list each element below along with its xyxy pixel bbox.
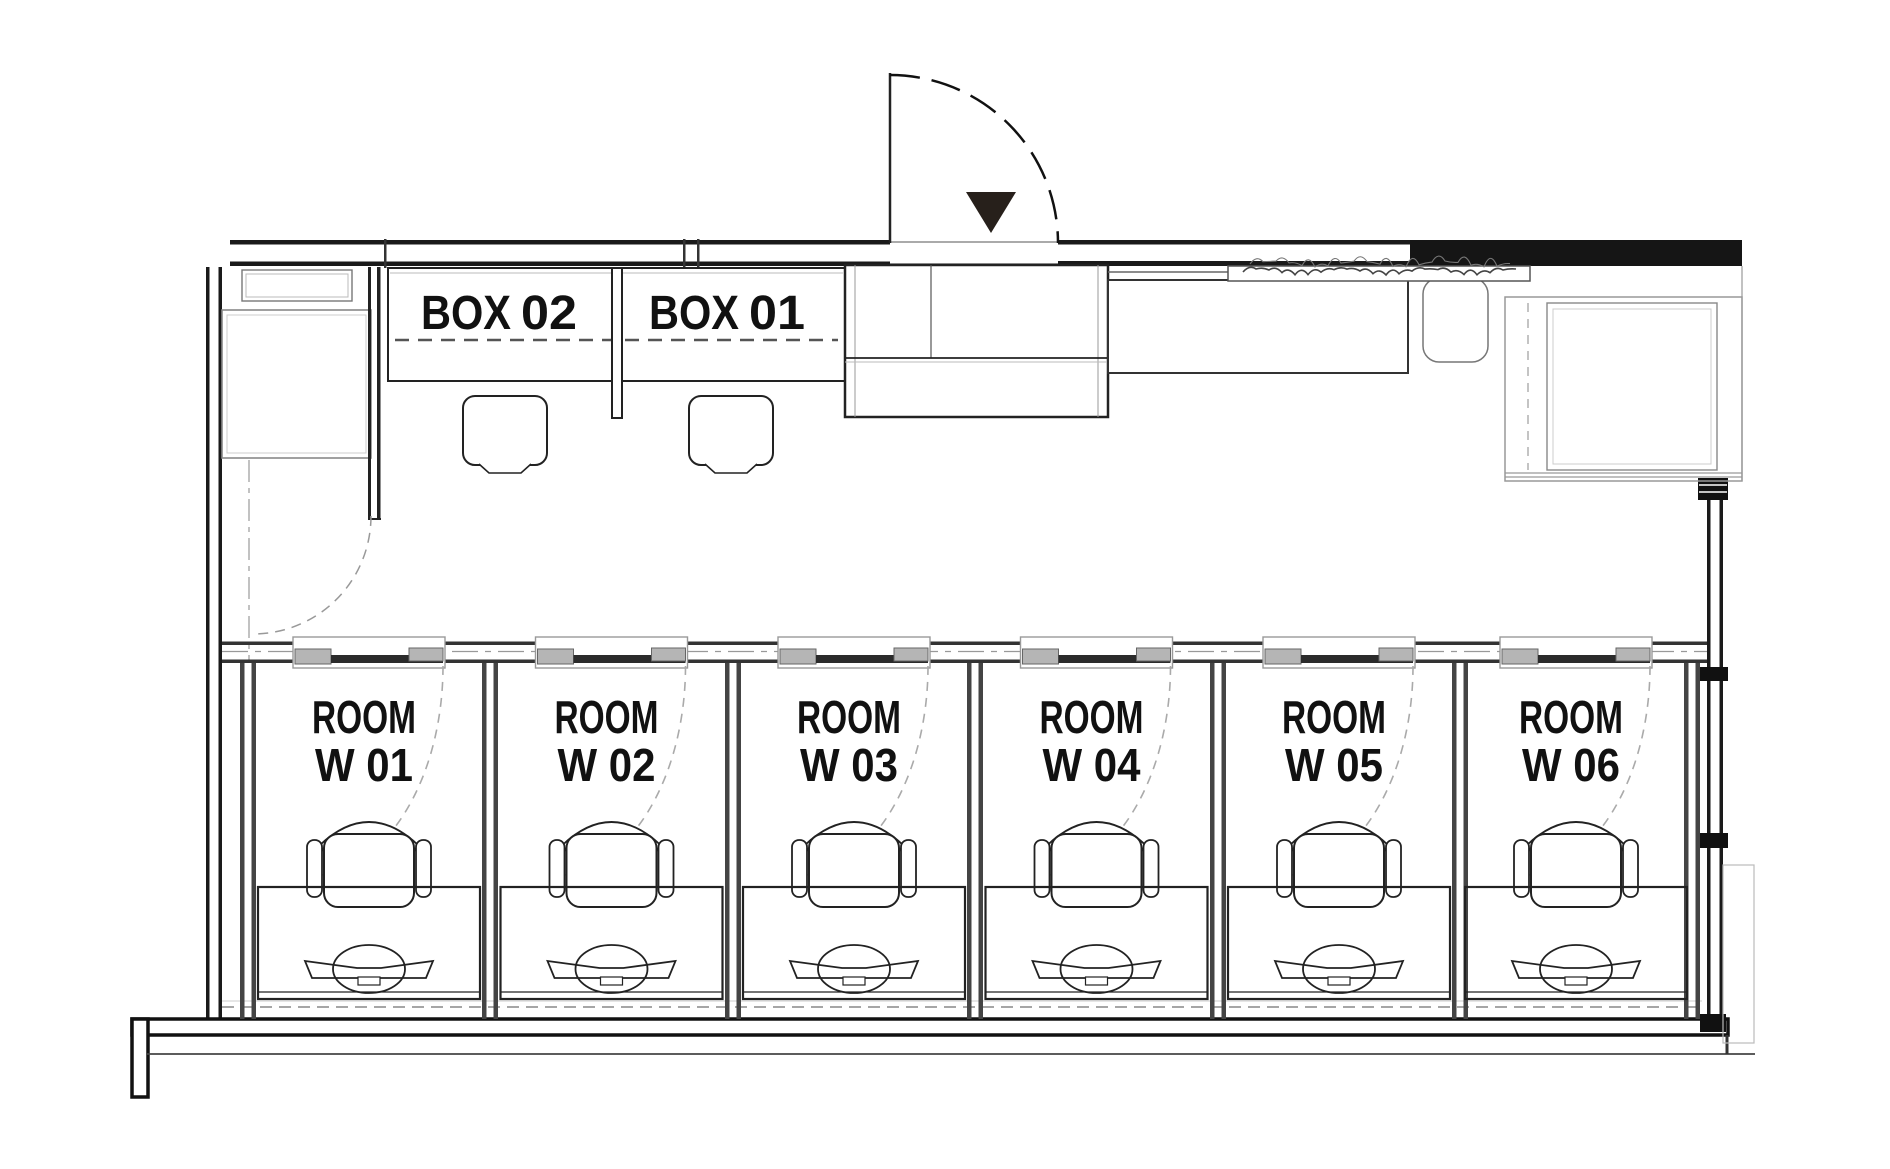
box-01-label: BOX01 xyxy=(649,287,805,340)
box-02-label: BOX02 xyxy=(421,287,577,340)
wall-mullion xyxy=(1698,833,1728,848)
room: ROOMW 05 xyxy=(1228,637,1450,999)
box-cabinet: BOX02 BOX01 xyxy=(388,268,845,473)
room-id-label: W 06 xyxy=(1522,739,1620,791)
reception-counter xyxy=(845,265,1108,417)
partition-line xyxy=(252,663,257,1019)
room-id-label: W 05 xyxy=(1285,739,1383,791)
partition-line xyxy=(494,663,499,1019)
entrance-door xyxy=(890,73,1058,243)
room-partitions xyxy=(240,663,1700,1019)
stool xyxy=(689,396,773,473)
room: ROOMW 04 xyxy=(986,637,1208,999)
exterior-ledge xyxy=(1723,865,1754,1043)
sink xyxy=(1423,278,1488,362)
entrance-swing-arc xyxy=(890,75,1058,243)
top-wall xyxy=(230,239,1742,268)
floor-plan-drawing: BOX02 BOX01 xyxy=(0,0,1890,1169)
closet-cabinet xyxy=(222,310,371,458)
entrance-direction-icon xyxy=(966,192,1016,233)
closet-shelf xyxy=(242,270,352,301)
room-name-label: ROOM xyxy=(555,691,659,743)
stool xyxy=(463,396,547,473)
room-name-label: ROOM xyxy=(312,691,416,743)
room-name-label: ROOM xyxy=(1282,691,1386,743)
floor-plan: BOX02 BOX01 xyxy=(0,0,1890,1169)
room: ROOMW 03 xyxy=(743,637,965,999)
closet-door-swing-arc xyxy=(253,516,371,634)
partition-line xyxy=(240,663,245,1019)
left-wall xyxy=(206,267,222,1033)
room: ROOMW 06 xyxy=(1465,637,1687,999)
partition-line xyxy=(725,663,730,1019)
room-id-label: W 04 xyxy=(1043,739,1141,791)
partition-line xyxy=(482,663,487,1019)
partition-line xyxy=(979,663,984,1019)
room-id-label: W 01 xyxy=(315,739,413,791)
wall-mullion xyxy=(1700,1014,1726,1032)
partition-line xyxy=(1210,663,1215,1019)
entrance-threshold xyxy=(890,241,1058,243)
room: ROOMW 02 xyxy=(501,637,723,999)
wall-mullion xyxy=(1698,667,1728,681)
room-floor-lines xyxy=(222,1001,1702,1007)
room-id-label: W 03 xyxy=(800,739,898,791)
room-name-label: ROOM xyxy=(1040,691,1144,743)
room-id-label: W 02 xyxy=(558,739,656,791)
partition-line xyxy=(967,663,972,1019)
bottom-left-step xyxy=(132,1019,148,1097)
partition-line xyxy=(1452,663,1457,1019)
bottom-wall xyxy=(132,1019,1755,1097)
partition-line xyxy=(737,663,742,1019)
storage-closet xyxy=(222,267,381,663)
rooms: ROOMW 01ROOMW 02ROOMW 03ROOMW 04ROOMW 05… xyxy=(258,637,1687,999)
right-wall xyxy=(1698,478,1754,1043)
room-name-label: ROOM xyxy=(1519,691,1623,743)
pantry-cabinet xyxy=(1505,266,1742,481)
partition-line xyxy=(1222,663,1227,1019)
partition-line xyxy=(1696,663,1701,1019)
room: ROOMW 01 xyxy=(258,637,480,999)
room-name-label: ROOM xyxy=(797,691,901,743)
box-partition-panel xyxy=(612,268,622,418)
